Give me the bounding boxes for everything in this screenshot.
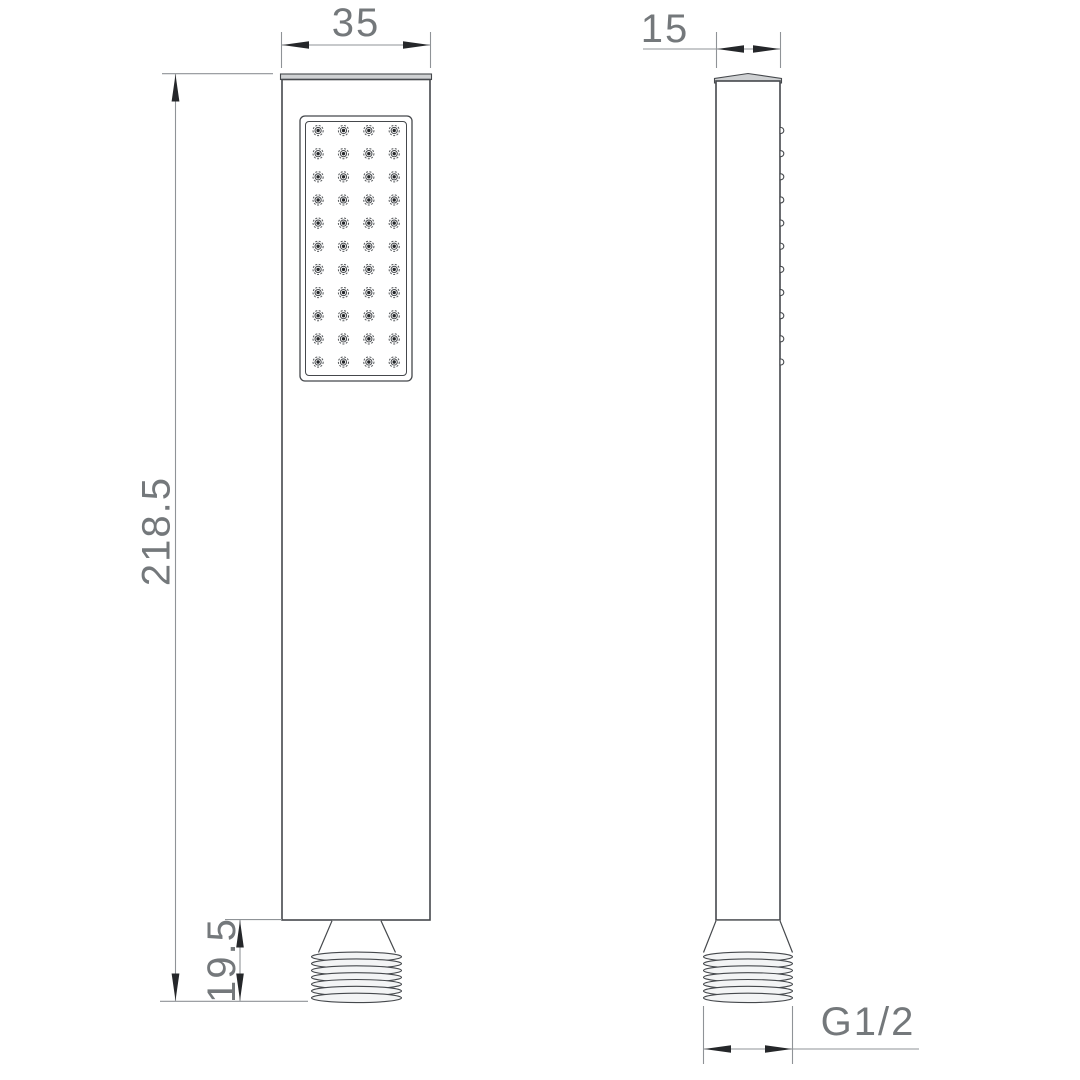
- dimension-label-thread: G1/2: [800, 1002, 936, 1042]
- front-top-cap: [281, 74, 432, 80]
- dimension-label-depth: 15: [605, 9, 725, 49]
- side-body: [716, 81, 780, 920]
- dimension-label-width: 35: [296, 3, 416, 43]
- dimension-label-height: 218.5: [137, 451, 177, 612]
- dimension-height: [162, 74, 273, 1001]
- drawing-page: 35 15 218.5 19.5 G1/2: [0, 0, 1080, 1080]
- front-body: [282, 80, 430, 921]
- front-thread: [312, 952, 402, 1003]
- dimension-label-inlet-length: 19.5: [202, 900, 242, 1020]
- front-view: [281, 74, 432, 1003]
- dimension-annotations: [160, 32, 919, 1064]
- side-thread: [704, 952, 793, 1003]
- side-view: [704, 74, 793, 1003]
- side-neck: [704, 921, 793, 953]
